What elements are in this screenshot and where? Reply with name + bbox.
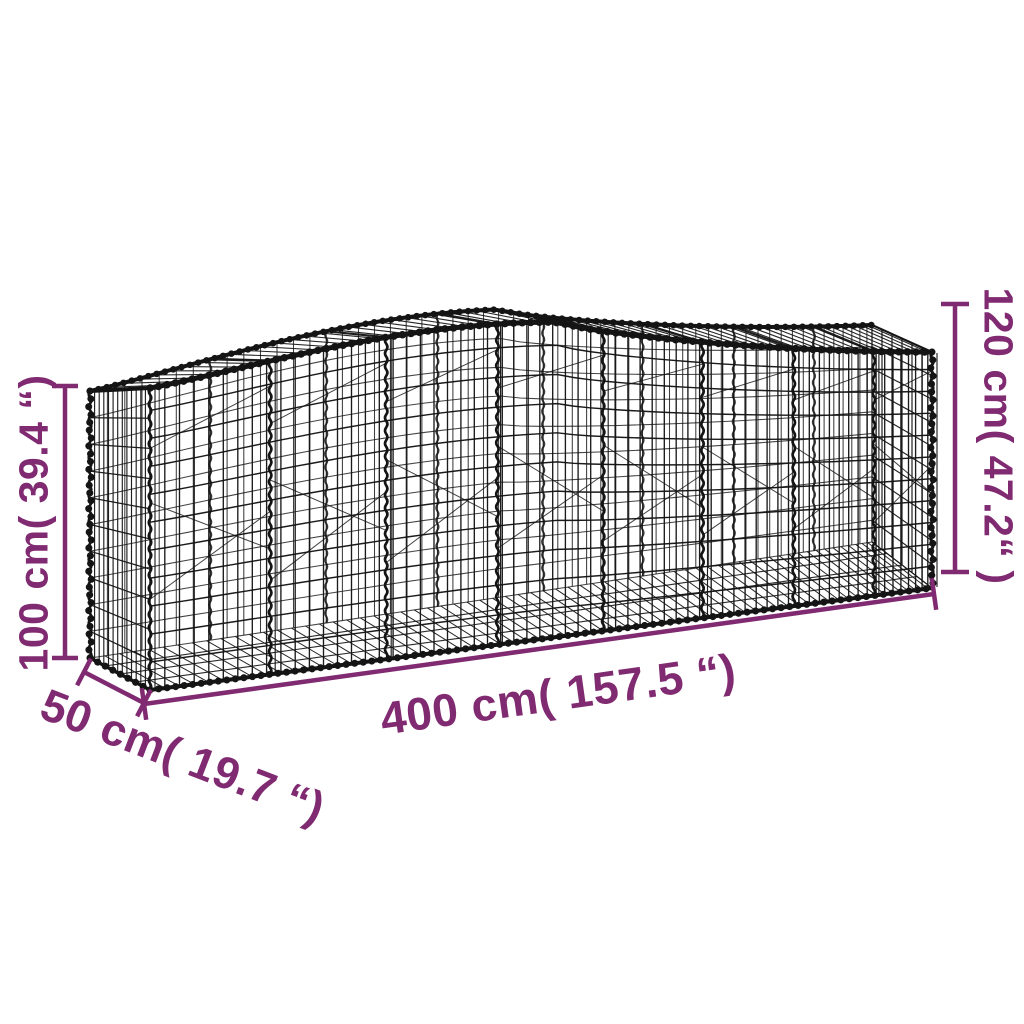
basket-right-end-panel xyxy=(872,325,933,588)
dimension-depth-label: 50 cm( 19.7 “) xyxy=(34,679,332,834)
gabion-basket-diagram: 100 cm( 39.4 “) 120 cm( 47.2“ ) 400 cm( … xyxy=(0,0,1024,1024)
dimension-height-right: 120 cm( 47.2“ ) xyxy=(941,288,1022,585)
dimension-length-label: 400 cm( 157.5 “) xyxy=(377,643,739,744)
dimension-cap xyxy=(932,578,936,610)
basket-floor-mesh xyxy=(90,542,932,690)
dimension-height-left: 100 cm( 39.4 “) xyxy=(10,375,78,672)
dimension-height-left-label: 100 cm( 39.4 “) xyxy=(10,375,56,672)
product-diagram: 100 cm( 39.4 “) 120 cm( 47.2“ ) 400 cm( … xyxy=(0,0,1024,1024)
basket-left-end-panel xyxy=(89,388,150,690)
dimension-height-right-label: 120 cm( 47.2“ ) xyxy=(976,288,1022,585)
